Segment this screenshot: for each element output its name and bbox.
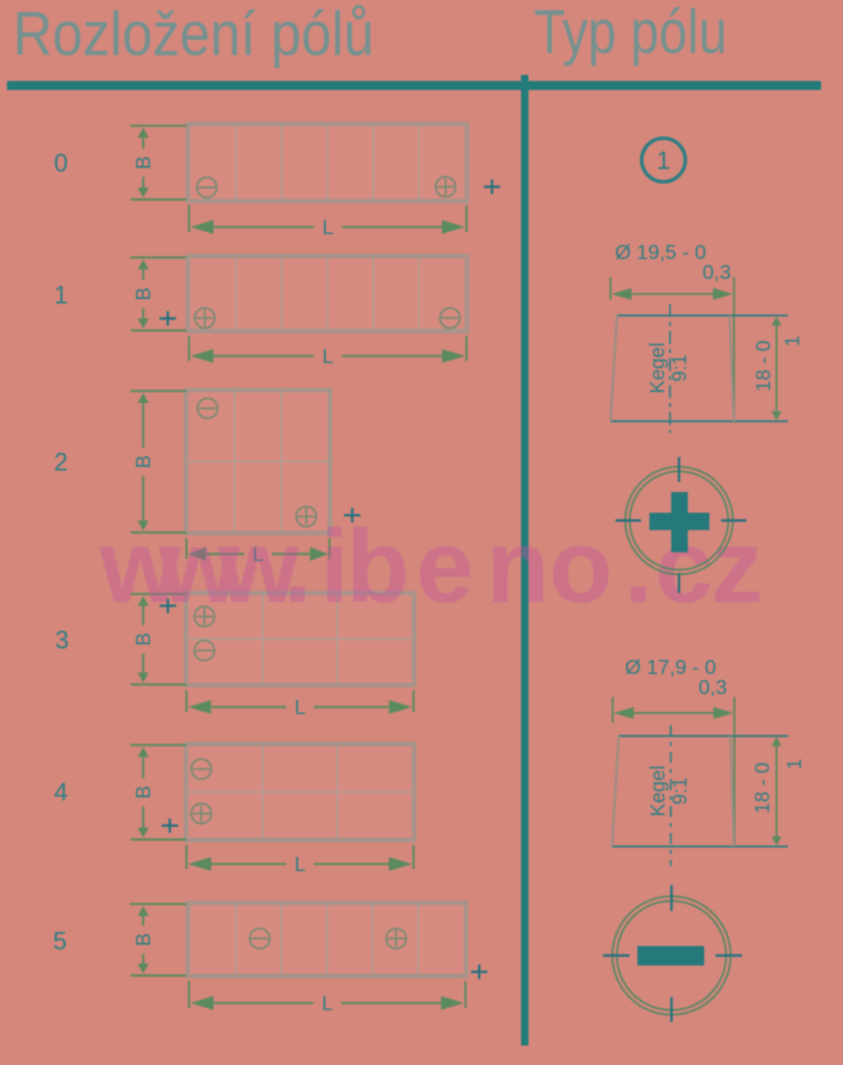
svg-text:L: L <box>294 854 305 876</box>
svg-text:L: L <box>322 993 333 1015</box>
svg-text:B: B <box>133 287 155 300</box>
svg-text:1: 1 <box>782 335 804 346</box>
svg-text:B: B <box>133 455 155 468</box>
svg-text:2: 2 <box>54 449 68 477</box>
svg-text:3: 3 <box>55 627 69 655</box>
svg-text:0,3: 0,3 <box>699 676 728 699</box>
svg-text:B: B <box>133 933 155 946</box>
svg-text:5: 5 <box>53 928 67 956</box>
svg-text:0: 0 <box>54 150 68 178</box>
svg-text:B: B <box>133 786 155 799</box>
svg-text:L: L <box>322 217 333 239</box>
svg-text:Kegel: Kegel <box>647 342 669 393</box>
svg-text:Ø 19,5 - 0: Ø 19,5 - 0 <box>615 241 706 264</box>
svg-text:Rozložení pólů: Rozložení pólů <box>13 0 374 69</box>
svg-text:1: 1 <box>657 147 671 175</box>
svg-text:1: 1 <box>784 758 806 769</box>
svg-text:0,3: 0,3 <box>703 261 732 284</box>
svg-text:B: B <box>133 633 155 646</box>
svg-text:Typ pólu: Typ pólu <box>534 0 727 67</box>
svg-text:B: B <box>133 156 155 169</box>
svg-text:Kegel: Kegel <box>648 765 670 816</box>
svg-text:L: L <box>322 346 333 368</box>
svg-text:L: L <box>294 697 305 719</box>
svg-text:18 - 0: 18 - 0 <box>753 340 775 391</box>
svg-text:18 - 0: 18 - 0 <box>752 762 774 813</box>
svg-text:1: 1 <box>54 282 68 310</box>
svg-text:9:1: 9:1 <box>670 777 692 805</box>
svg-text:9:1: 9:1 <box>669 354 691 382</box>
svg-text:4: 4 <box>54 779 68 807</box>
